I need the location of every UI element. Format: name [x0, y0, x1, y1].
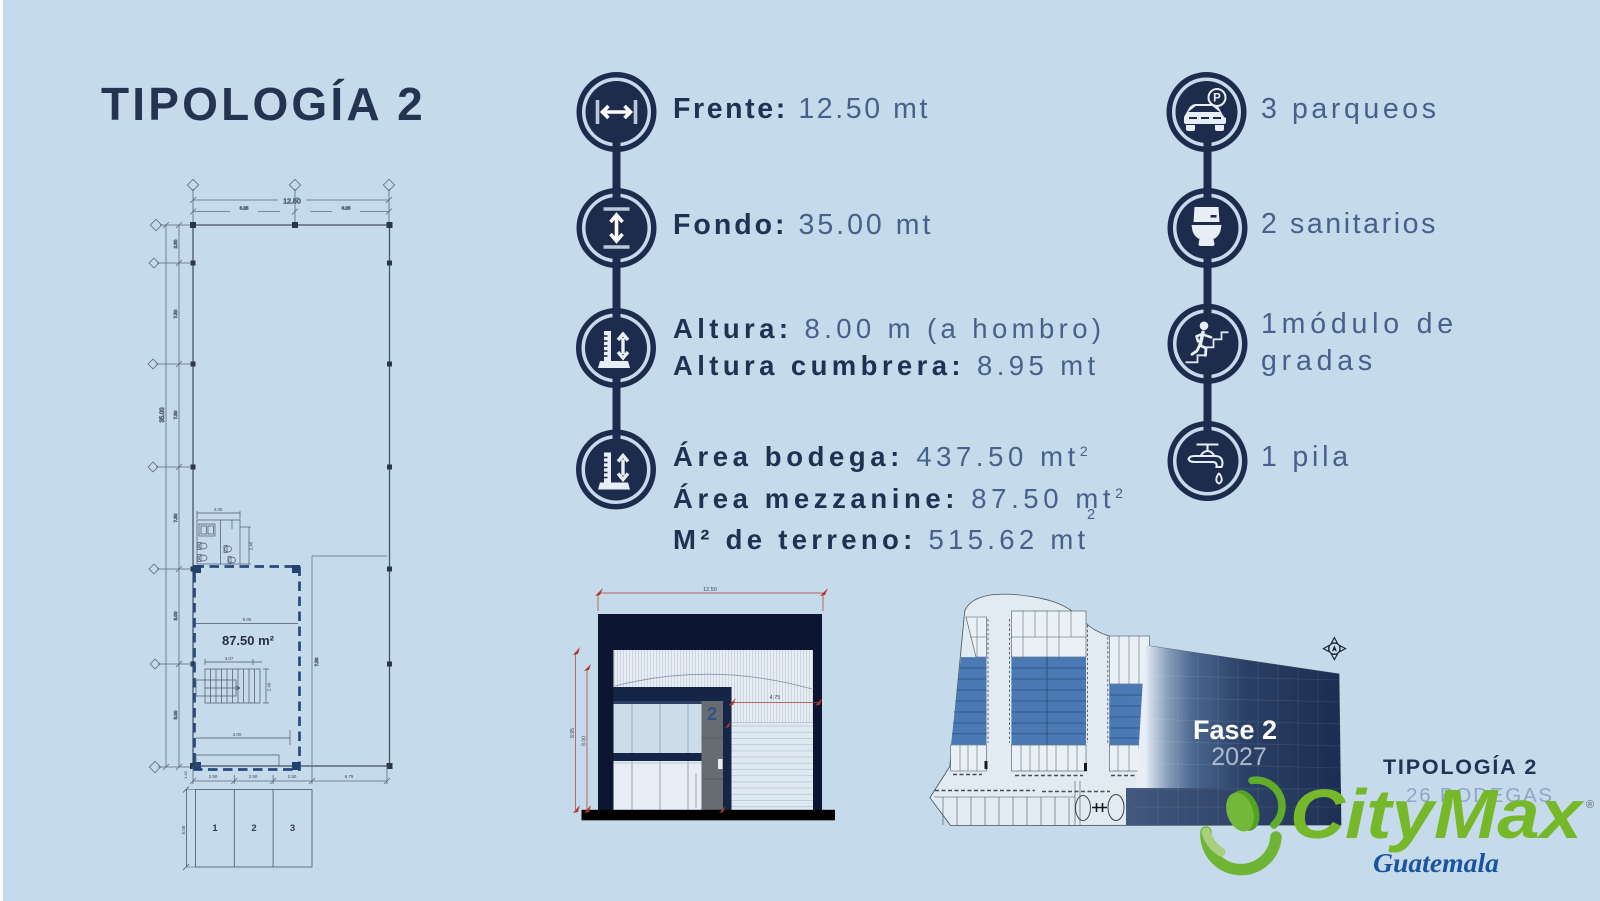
svg-text:5.00: 5.00 — [173, 710, 178, 719]
svg-text:8.00: 8.00 — [582, 736, 588, 746]
svg-text:4.00: 4.00 — [233, 732, 242, 737]
svg-text:3: 3 — [290, 823, 295, 834]
svg-text:7.50: 7.50 — [173, 513, 178, 522]
svg-text:5.00: 5.00 — [181, 825, 186, 834]
svg-text:6.75: 6.75 — [345, 774, 354, 779]
svg-text:6.25: 6.25 — [240, 206, 249, 211]
svg-text:P: P — [1213, 93, 1221, 105]
svg-text:6.25: 6.25 — [342, 206, 351, 211]
svg-text:®: ® — [1586, 799, 1594, 811]
svg-text:7.50: 7.50 — [173, 410, 178, 419]
svg-text:5.00: 5.00 — [243, 617, 252, 622]
svg-text:CityMax: CityMax — [1290, 775, 1585, 853]
svg-text:4.00: 4.00 — [214, 507, 223, 512]
svg-text:35.00: 35.00 — [160, 407, 166, 423]
svg-text:2.40: 2.40 — [267, 682, 272, 691]
svg-text:3.07: 3.07 — [225, 656, 234, 661]
svg-text:Fase 2: Fase 2 — [1193, 715, 1277, 745]
svg-text:2: 2 — [251, 823, 256, 834]
svg-text:7.50: 7.50 — [314, 657, 319, 666]
svg-text:8.95: 8.95 — [570, 728, 576, 738]
svg-text:1.45: 1.45 — [183, 770, 188, 779]
svg-text:2.45: 2.45 — [249, 541, 254, 550]
svg-text:87.50 m²: 87.50 m² — [222, 633, 275, 648]
svg-text:1: 1 — [212, 823, 218, 834]
svg-text:2.50: 2.50 — [249, 774, 258, 779]
svg-text:Guatemala: Guatemala — [1373, 848, 1499, 878]
svg-text:4.75: 4.75 — [770, 695, 781, 701]
svg-text:2: 2 — [707, 704, 717, 724]
svg-text:2.50: 2.50 — [288, 774, 297, 779]
svg-text:12.50: 12.50 — [703, 587, 717, 593]
svg-text:5.00: 5.00 — [173, 611, 178, 620]
svg-text:2.50: 2.50 — [209, 774, 218, 779]
svg-text:12.50: 12.50 — [283, 199, 301, 206]
svg-text:7.50: 7.50 — [173, 309, 178, 318]
svg-text:2.50: 2.50 — [173, 239, 178, 248]
